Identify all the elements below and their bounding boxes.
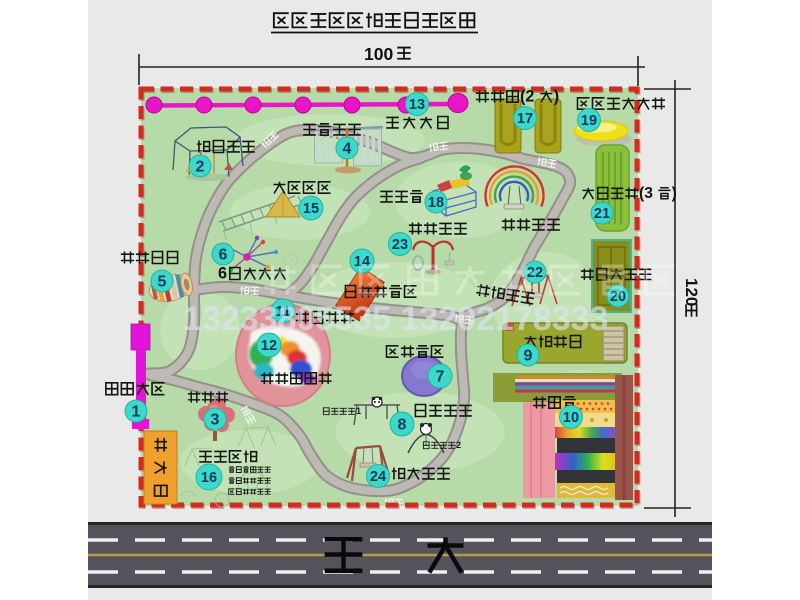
svg-text:21: 21 [594,206,610,222]
svg-text:4: 4 [343,141,352,158]
svg-text:16: 16 [201,470,217,486]
svg-text:1: 1 [356,406,361,416]
svg-text:19: 19 [581,113,597,129]
svg-text:9: 9 [524,348,533,365]
svg-text:120: 120 [682,278,701,306]
svg-text:18: 18 [428,195,444,211]
svg-text:23: 23 [392,237,408,253]
svg-text:(2: (2 [520,88,534,106]
svg-text:15: 15 [303,201,319,217]
svg-text:3: 3 [211,412,220,429]
svg-text:8: 8 [398,417,407,434]
svg-text:13233805535 13202178333: 13233805535 13202178333 [183,300,608,338]
svg-text:2: 2 [196,159,205,176]
svg-text:100: 100 [364,44,393,64]
svg-text:7: 7 [436,369,445,386]
svg-text:20: 20 [610,289,626,305]
svg-text:1: 1 [132,404,141,421]
svg-text:10: 10 [563,410,579,426]
svg-text:6: 6 [218,265,227,283]
svg-text:17: 17 [517,111,533,127]
svg-text:): ) [672,185,677,202]
svg-text:5: 5 [158,274,167,291]
svg-text:24: 24 [370,469,386,485]
svg-text:2: 2 [456,440,461,450]
svg-text:12: 12 [261,338,277,354]
svg-text:13: 13 [409,97,425,113]
svg-text:): ) [554,88,559,106]
svg-text:(3: (3 [639,185,653,202]
svg-text:6: 6 [219,247,228,264]
